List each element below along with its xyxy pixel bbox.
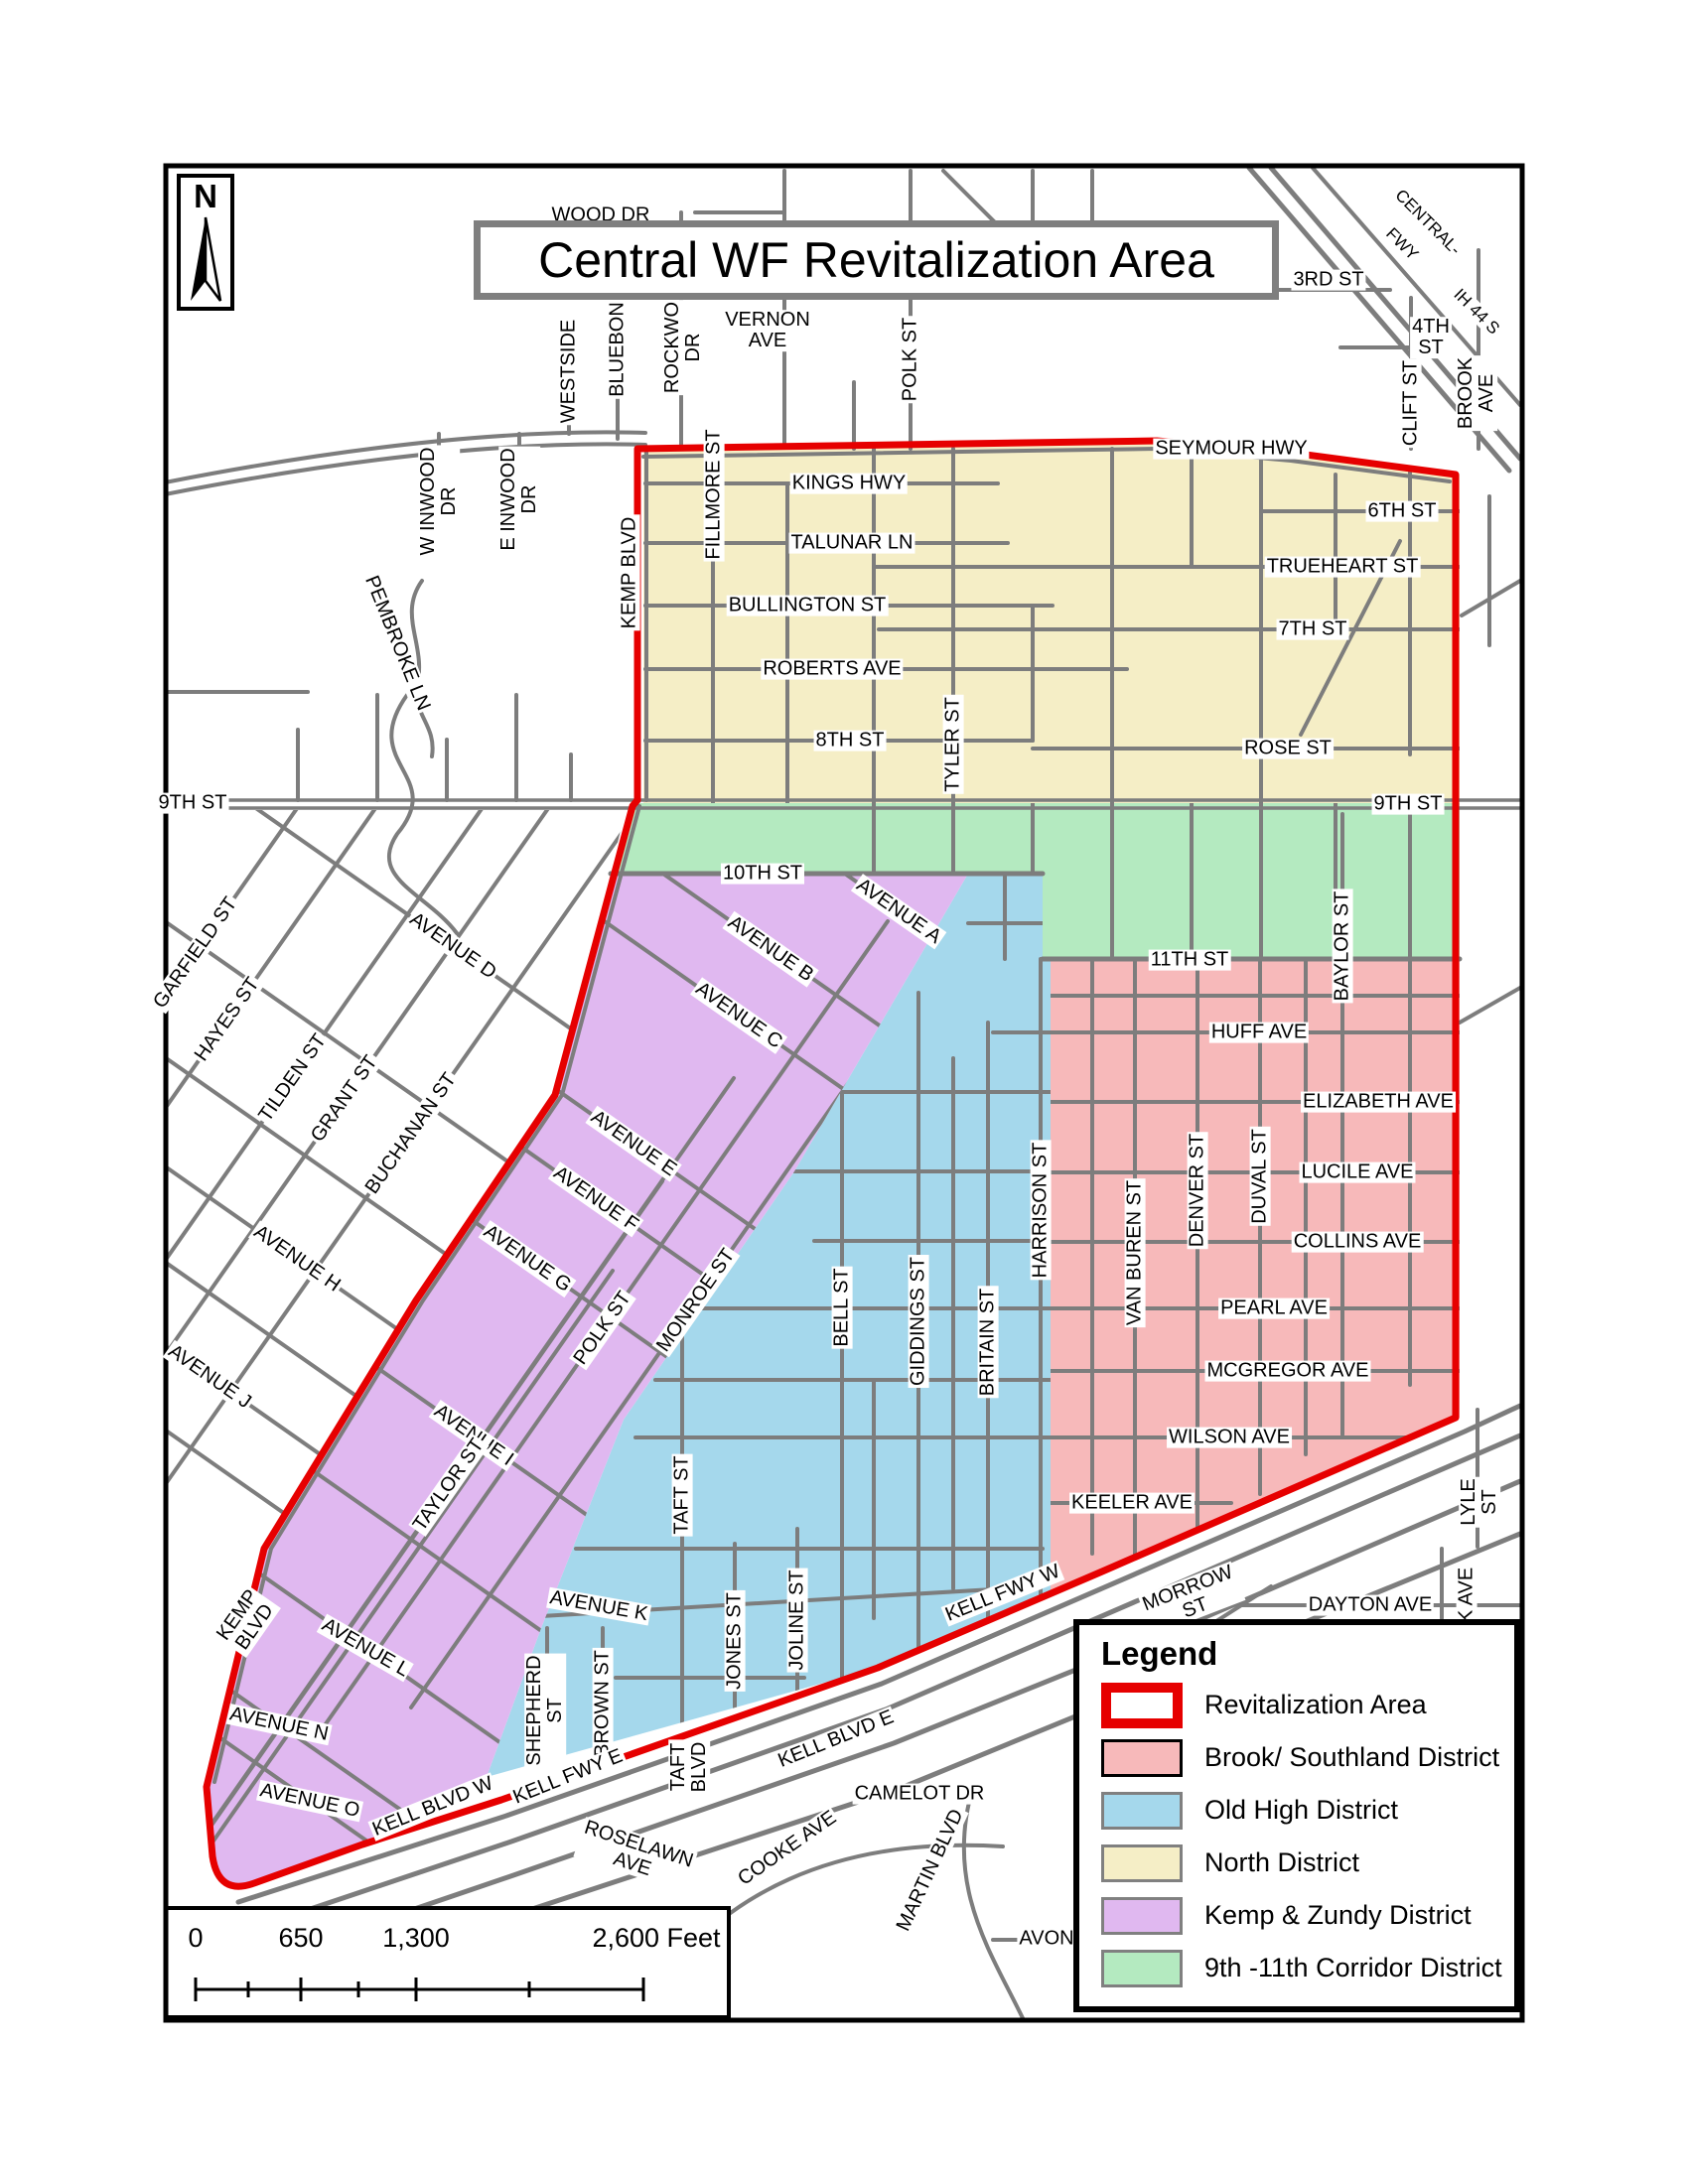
north-arrow-icon — [181, 213, 230, 307]
legend-label-9th-11th-corridor-district: 9th -11th Corridor District — [1204, 1953, 1502, 1983]
legend-swatch-9th-11th-corridor-district — [1101, 1950, 1183, 1987]
legend-label-old-high-district: Old High District — [1204, 1795, 1398, 1826]
legend-swatch-revitalization-area — [1101, 1683, 1183, 1728]
legend-label-brook-southland-district: Brook/ Southland District — [1204, 1742, 1499, 1773]
legend-item-9th-11th-corridor-district: 9th -11th Corridor District — [1101, 1942, 1514, 1994]
legend-swatch-brook-southland-district — [1101, 1739, 1183, 1777]
legend-item-revitalization-area: Revitalization Area — [1101, 1679, 1514, 1731]
legend-label-north-district: North District — [1204, 1847, 1359, 1878]
map-title: Central WF Revitalization Area — [538, 231, 1214, 289]
north-arrow-box: N — [177, 174, 234, 311]
legend-label-revitalization-area: Revitalization Area — [1204, 1690, 1427, 1720]
legend-item-kemp-zundy-district: Kemp & Zundy District — [1101, 1889, 1514, 1942]
scale-bar — [133, 1908, 729, 2017]
north-label: N — [181, 180, 230, 213]
legend-swatch-old-high-district — [1101, 1792, 1183, 1830]
district-brook-southland — [1051, 959, 1460, 1591]
legend-item-old-high-district: Old High District — [1101, 1784, 1514, 1837]
legend-item-north-district: North District — [1101, 1837, 1514, 1889]
legend-item-brook-southland-district: Brook/ Southland District — [1101, 1731, 1514, 1784]
map-page: WOOD DRWESTSIDEBLUEBONROCKWO DRVERNON AV… — [0, 0, 1688, 2184]
legend-title: Legend — [1101, 1635, 1514, 1673]
legend: Legend Revitalization AreaBrook/ Southla… — [1073, 1619, 1520, 2012]
map-title-box: Central WF Revitalization Area — [474, 220, 1279, 300]
legend-swatch-north-district — [1101, 1844, 1183, 1882]
legend-items: Revitalization AreaBrook/ Southland Dist… — [1101, 1679, 1514, 1994]
legend-swatch-kemp-zundy-district — [1101, 1897, 1183, 1935]
legend-label-kemp-zundy-district: Kemp & Zundy District — [1204, 1900, 1472, 1931]
